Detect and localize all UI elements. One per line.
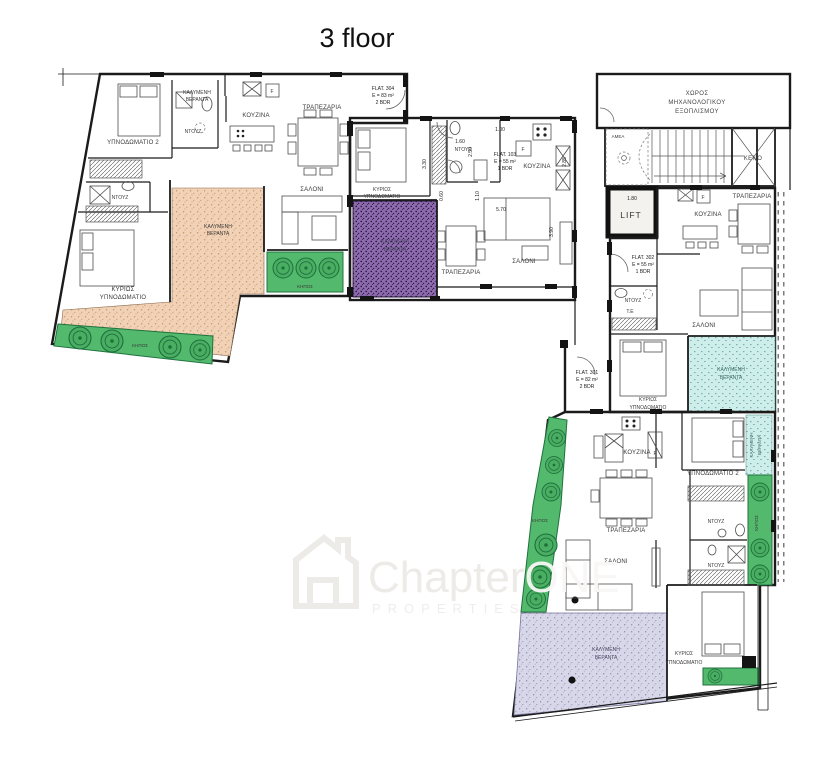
room-label: ΒΕΡΑΝΤΑ xyxy=(384,247,407,253)
svg-text:5.70: 5.70 xyxy=(496,207,506,213)
garden-label: ΚΗΠΟΣ xyxy=(532,518,548,523)
accessible-zone: ΑΜΕΑ xyxy=(606,129,648,185)
flat-103-bed xyxy=(356,126,446,184)
room-label: ΥΠΝΟΔΩΜΑΤΙΟ xyxy=(364,194,401,200)
room-label: ΚΥΡΙΩΣ xyxy=(111,287,134,293)
flat-304-sofa xyxy=(282,196,342,244)
svg-text:E = 83 m²: E = 83 m² xyxy=(372,93,394,99)
mechanical-room-label: ΜΗΧΑΝΟΛΟΓΙΚΟΥ xyxy=(668,100,725,106)
svg-text:1.00: 1.00 xyxy=(495,127,505,133)
watermark-house-icon xyxy=(296,538,356,606)
lift: 1.80 LIFT xyxy=(608,188,656,236)
mechanical-room-label: ΧΩΡΟΣ xyxy=(686,91,709,97)
svg-text:1 BDR: 1 BDR xyxy=(498,166,513,172)
garden-label: ΚΗΠΟΣ xyxy=(297,284,313,289)
room-label: ΝΤΟΥΖ xyxy=(708,563,725,569)
mechanical-room-label: ΕΞΟΠΛΙΣΜΟΥ xyxy=(675,109,719,115)
svg-text:3.90: 3.90 xyxy=(549,227,555,237)
flat-103-tag: FLAT. 103 E = 55 m² 1 BDR xyxy=(494,152,517,172)
flat-103-kitchen-units xyxy=(516,124,570,190)
room-label: ΚΟΥΖΙΝΑ xyxy=(242,113,269,119)
flat-301-bath-2 xyxy=(708,545,745,563)
plan-dot xyxy=(569,677,576,684)
room-label: ΥΠΝΟΔΩΜΑΤΙΟ 2 xyxy=(687,471,739,477)
svg-text:ΚΑΛΥΜΕΝΗ: ΚΑΛΥΜΕΝΗ xyxy=(749,433,754,458)
svg-text:E = 55 m²: E = 55 m² xyxy=(632,262,654,268)
flat-301-dining-table xyxy=(591,470,652,526)
room-label: ΚΥΡΙΩΣ xyxy=(373,187,391,193)
void-label: ΚΕΝΟ xyxy=(744,156,763,162)
flat-304-bed-2 xyxy=(90,84,160,178)
flat-301-master-bed xyxy=(702,592,756,668)
room-label: ΚΥΡΙΩΣ xyxy=(675,651,693,657)
room-label: ΥΠΝΟΔΩΜΑΤΙΟ xyxy=(666,660,703,666)
room-label: Τ.Ε xyxy=(626,309,634,315)
svg-text:ΒΕΡΑΝΤΑ: ΒΕΡΑΝΤΑ xyxy=(757,435,762,455)
svg-text:1.60: 1.60 xyxy=(455,139,465,145)
room-label: ΚΑΛΥΜΕΝΗ xyxy=(183,90,211,96)
room-label: ΝΤΟΥΖ xyxy=(708,519,725,525)
svg-text:FLAT. 302: FLAT. 302 xyxy=(632,255,655,261)
room-label: ΚΑΛΥΜΕΝΗ xyxy=(592,647,620,653)
svg-text:2.85: 2.85 xyxy=(562,157,568,167)
flat-304-dining-table xyxy=(288,110,348,175)
flat-302-sofa xyxy=(700,268,772,330)
stair-treads xyxy=(639,130,744,183)
staircase xyxy=(605,128,757,186)
flat-301-bed-2 xyxy=(688,418,744,585)
floor-plan-drawing: 3 floor ΚΗΠΟΣ ΚΗΠΟΣ xyxy=(0,0,836,757)
flat-302-tag: FLAT. 302 E = 55 m² 1 BDR xyxy=(632,255,655,275)
room-label: ΝΤΟΥΖ xyxy=(625,298,642,304)
flat-304-garden-strip-right: ΚΗΠΟΣ xyxy=(267,252,343,292)
svg-text:FLAT. 304: FLAT. 304 xyxy=(372,86,395,92)
flat-301-veranda-strip: ΚΑΛΥΜΕΝΗ ΒΕΡΑΝΤΑ xyxy=(746,415,772,475)
fridge-label: F xyxy=(701,195,704,201)
accessible-label: ΑΜΕΑ xyxy=(612,134,625,139)
core-door xyxy=(600,108,614,122)
room-label: ΣΑΛΟΝΙ xyxy=(512,259,536,265)
room-label: ΤΡΑΠΕΖΑΡΙΑ xyxy=(607,528,646,534)
svg-text:2.50: 2.50 xyxy=(468,147,474,157)
room-label: ΣΑΛΟΝΙ xyxy=(300,187,324,193)
svg-text:FLAT. 301: FLAT. 301 xyxy=(576,370,599,376)
flat-301-tag: FLAT. 301 E = 82 m² 2 BDR xyxy=(576,370,599,390)
room-label: ΚΟΥΖΙΝΑ xyxy=(523,164,550,170)
svg-text:FLAT. 103: FLAT. 103 xyxy=(494,152,517,158)
lift-label: LIFT xyxy=(620,210,641,220)
room-label: ΒΕΡΑΝΤΑ xyxy=(720,375,743,381)
room-label: ΒΕΡΑΝΤΑ xyxy=(207,231,230,237)
room-label: ΤΡΑΠΕΖΑΡΙΑ xyxy=(303,105,342,111)
floor-plan-page: 3 floor ΚΗΠΟΣ ΚΗΠΟΣ xyxy=(0,0,836,757)
garden-label: ΚΗΠΟΣ xyxy=(754,515,759,531)
svg-text:1.10: 1.10 xyxy=(475,191,481,201)
watermark-brand: ChapterONE xyxy=(368,553,620,602)
flat-302-covered-veranda xyxy=(688,336,775,412)
room-label: ΝΤΟΥΖ xyxy=(185,129,202,135)
room-label: ΤΡΑΠΕΖΑΡΙΑ xyxy=(733,194,772,200)
room-label: ΚΑΛΥΜΕΝΗ xyxy=(717,367,745,373)
watermark-subtitle: PROPERTIES xyxy=(372,601,526,616)
garden-label: ΚΗΠΟΣ xyxy=(132,343,148,348)
flat-103-area: ΚΥΡΙΩΣ ΥΠΝΟΔΩΜΑΤΙΟ ΝΤΟΥΖ ΚΟΥΖΙΝΑ F ΤΡΑΠΕ… xyxy=(350,118,575,300)
room-label: ΚΟΥΖΙΝΑ xyxy=(694,212,721,218)
void-shaft: ΚΕΝΟ xyxy=(732,128,775,186)
room-label: ΥΠΝΟΔΩΜΑΤΙΟ 2 xyxy=(107,140,159,146)
room-label: ΚΥΡΙΩΣ xyxy=(639,397,657,403)
room-label: ΝΤΟΥΖ xyxy=(112,195,129,201)
room-label: ΚΑΛΥΜΕΝΗ xyxy=(204,224,232,230)
svg-text:3.30: 3.30 xyxy=(422,159,428,169)
flat-302-bed xyxy=(620,340,666,396)
flat-103-dining-table xyxy=(437,226,485,266)
room-label: ΤΡΑΠΕΖΑΡΙΑ xyxy=(442,270,481,276)
fridge-label: F xyxy=(270,89,273,95)
svg-text:2 BDR: 2 BDR xyxy=(580,384,595,390)
svg-text:2 BDR: 2 BDR xyxy=(376,100,391,106)
fridge-label: F xyxy=(521,147,524,153)
svg-text:1 BDR: 1 BDR xyxy=(636,269,651,275)
room-label: ΒΕΡΑΝΤΑ xyxy=(595,655,618,661)
svg-text:E = 82 m²: E = 82 m² xyxy=(576,377,598,383)
room-label: ΒΕΡΑΝΤΑ xyxy=(186,97,209,103)
page-title: 3 floor xyxy=(319,23,394,53)
flat-304-master-bed xyxy=(80,206,138,286)
room-label: ΣΑΛΟΝΙ xyxy=(692,323,716,329)
room-label: ΚΟΥΖΙΝΑ xyxy=(623,450,650,456)
flat-302-dining-table xyxy=(729,204,770,253)
lift-dimension: 1.80 xyxy=(627,196,637,202)
svg-text:E = 55 m²: E = 55 m² xyxy=(494,159,516,165)
svg-text:0.60: 0.60 xyxy=(439,191,445,201)
fridge-label: F xyxy=(653,451,656,457)
room-label: ΥΠΝΟΔΩΜΑΤΙΟ xyxy=(100,295,147,301)
flat-304-tag: FLAT. 304 E = 83 m² 2 BDR xyxy=(372,86,395,106)
flat-301-bath-1 xyxy=(718,524,745,537)
flat-302-kitchen-units xyxy=(678,189,718,248)
room-label: ΚΑΛΥΜΕΝΗ xyxy=(381,239,409,245)
watermark: ChapterONE PROPERTIES xyxy=(296,538,620,616)
